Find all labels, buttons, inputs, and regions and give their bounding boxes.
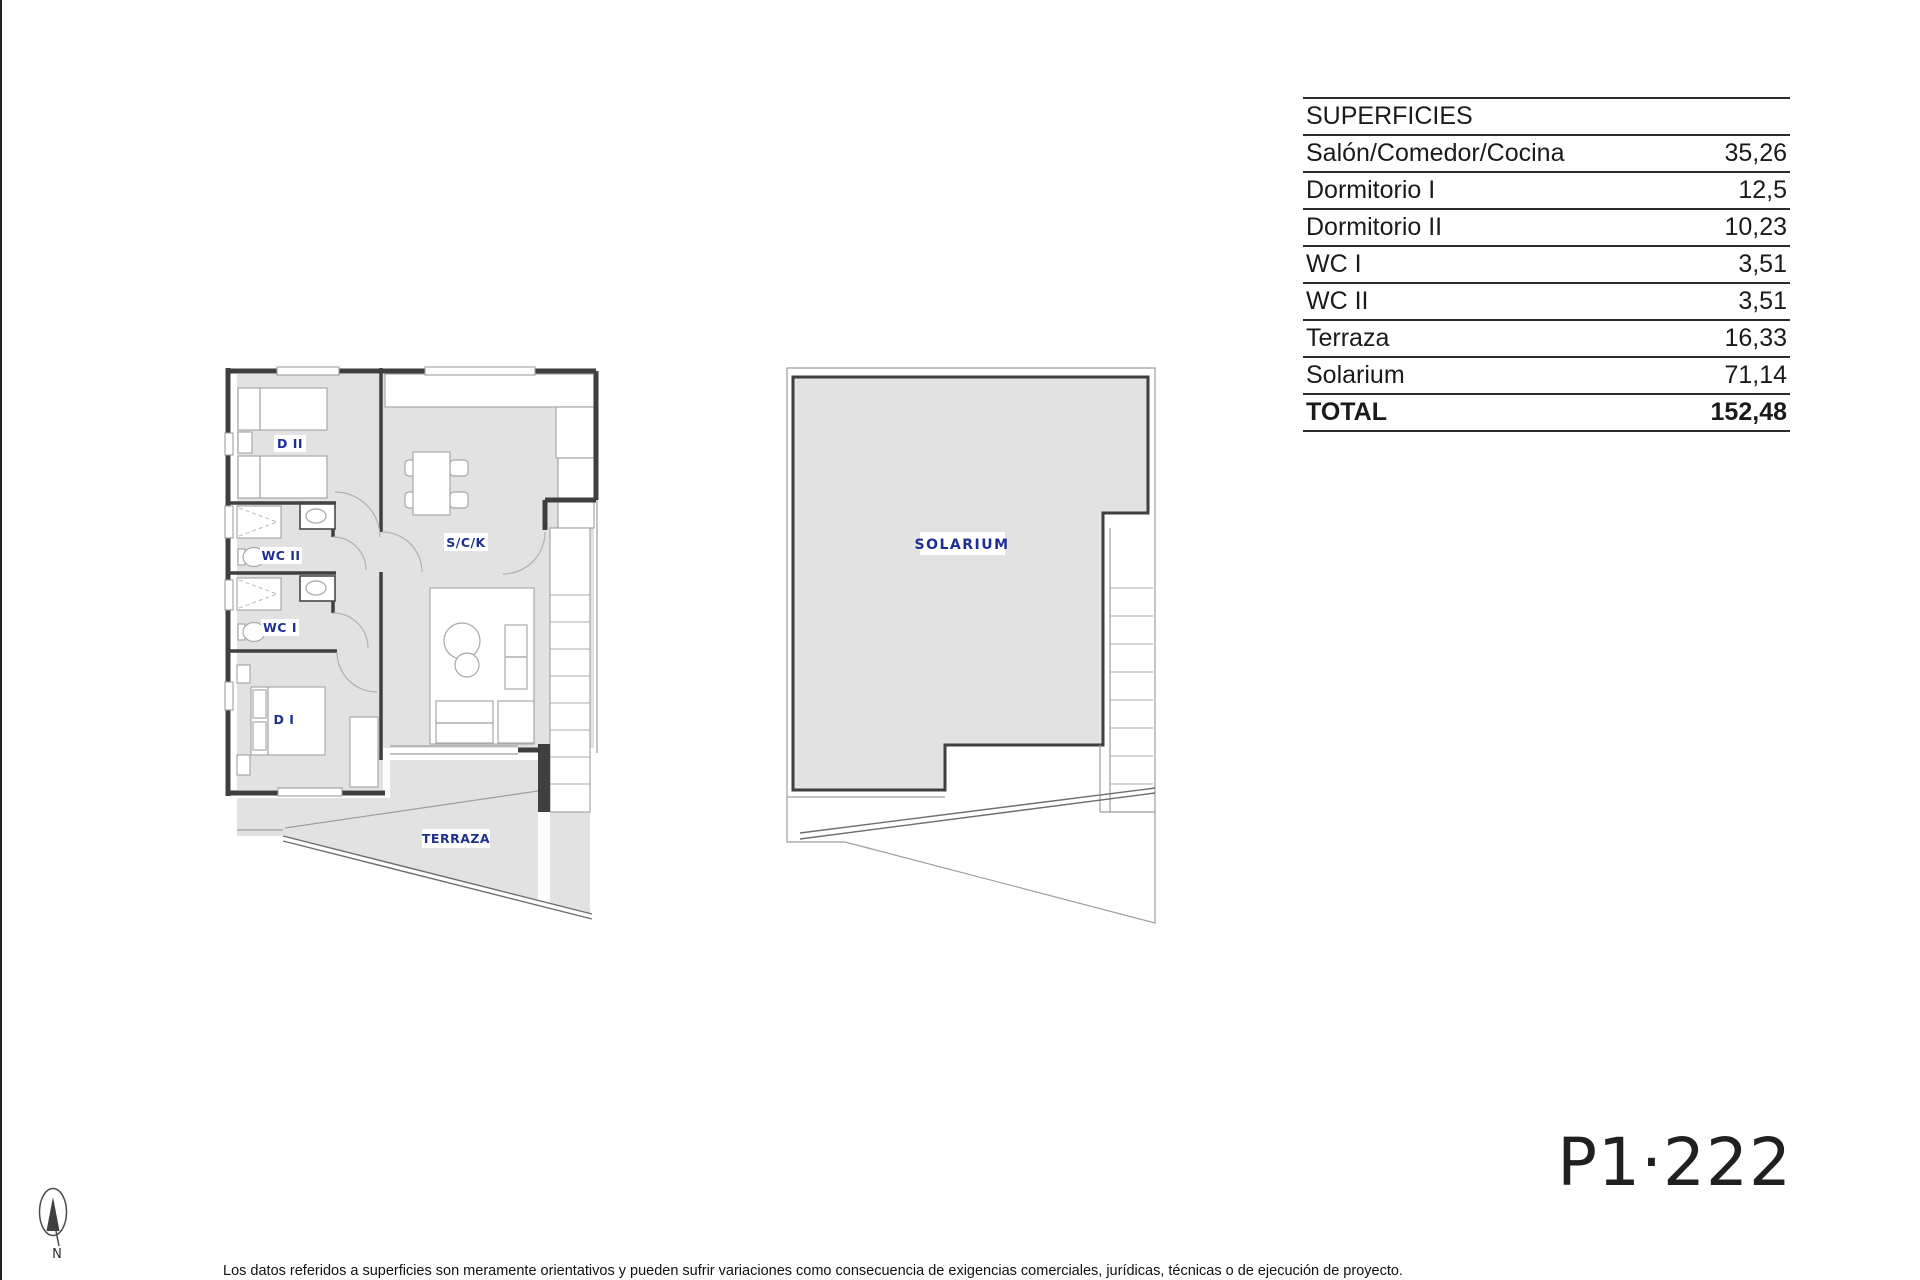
row-label: Dormitorio II [1306,213,1442,242]
room-label-d2: D II [274,435,306,452]
row-label: Solarium [1306,361,1405,390]
sheet-code: P1·222 [1557,1124,1792,1201]
room-label-d2-text: D II [277,436,303,451]
superficies-table: SUPERFICIES Salón/Comedor/Cocina 35,26 D… [1303,97,1790,432]
total-value: 152,48 [1711,398,1787,427]
room-label-d1-text: D I [274,712,295,727]
row-value: 16,33 [1724,324,1787,353]
table-header-row: SUPERFICIES [1303,97,1790,134]
row-value: 10,23 [1724,213,1787,242]
room-label-wc2-text: WC II [261,548,300,563]
table-row: WC II 3,51 [1303,282,1790,319]
row-value: 12,5 [1738,176,1787,205]
table-row: Dormitorio II 10,23 [1303,208,1790,245]
apartment-plan: D II WC II WC I D I S/C/K TERRAZA [225,367,597,919]
row-label: WC I [1306,250,1362,279]
room-label-sck-text: S/C/K [446,535,486,550]
row-value: 35,26 [1724,139,1787,168]
room-label-d1: D I [270,711,298,728]
total-label: TOTAL [1306,398,1387,427]
row-label: Terraza [1306,324,1389,353]
room-label-terraza-text: TERRAZA [422,831,490,846]
room-label-wc1-text: WC I [263,620,297,635]
room-label-sck: S/C/K [444,533,488,551]
room-label-terraza: TERRAZA [422,829,490,848]
solarium-stairs [1100,528,1155,812]
row-value: 3,51 [1738,287,1787,316]
room-label-wc2: WC II [260,547,302,564]
table-total-row: TOTAL 152,48 [1303,393,1790,430]
table-row: Dormitorio I 12,5 [1303,171,1790,208]
row-value: 3,51 [1738,250,1787,279]
solarium-floor [793,377,1148,790]
room-label-solarium-text: SOLARIUM [914,537,1009,553]
row-value: 71,14 [1724,361,1787,390]
table-row: WC I 3,51 [1303,245,1790,282]
room-label-wc1: WC I [261,619,299,636]
table-title: SUPERFICIES [1306,102,1473,131]
living-furniture [430,588,534,744]
row-label: WC II [1306,287,1369,316]
table-row: Terraza 16,33 [1303,319,1790,356]
north-compass: N [40,1189,67,1263]
solarium-railing [787,788,1155,839]
room-label-solarium: SOLARIUM [914,532,1009,555]
table-row: Solarium 71,14 [1303,356,1790,393]
compass-north-label: N [52,1247,62,1262]
row-label: Dormitorio I [1306,176,1435,205]
row-label: Salón/Comedor/Cocina [1306,139,1564,168]
solarium-plan: SOLARIUM [787,368,1155,923]
table-row: Salón/Comedor/Cocina 35,26 [1303,134,1790,171]
disclaimer-text: Los datos referidos a superficies son me… [223,1263,1403,1279]
compass-needle [47,1197,60,1231]
